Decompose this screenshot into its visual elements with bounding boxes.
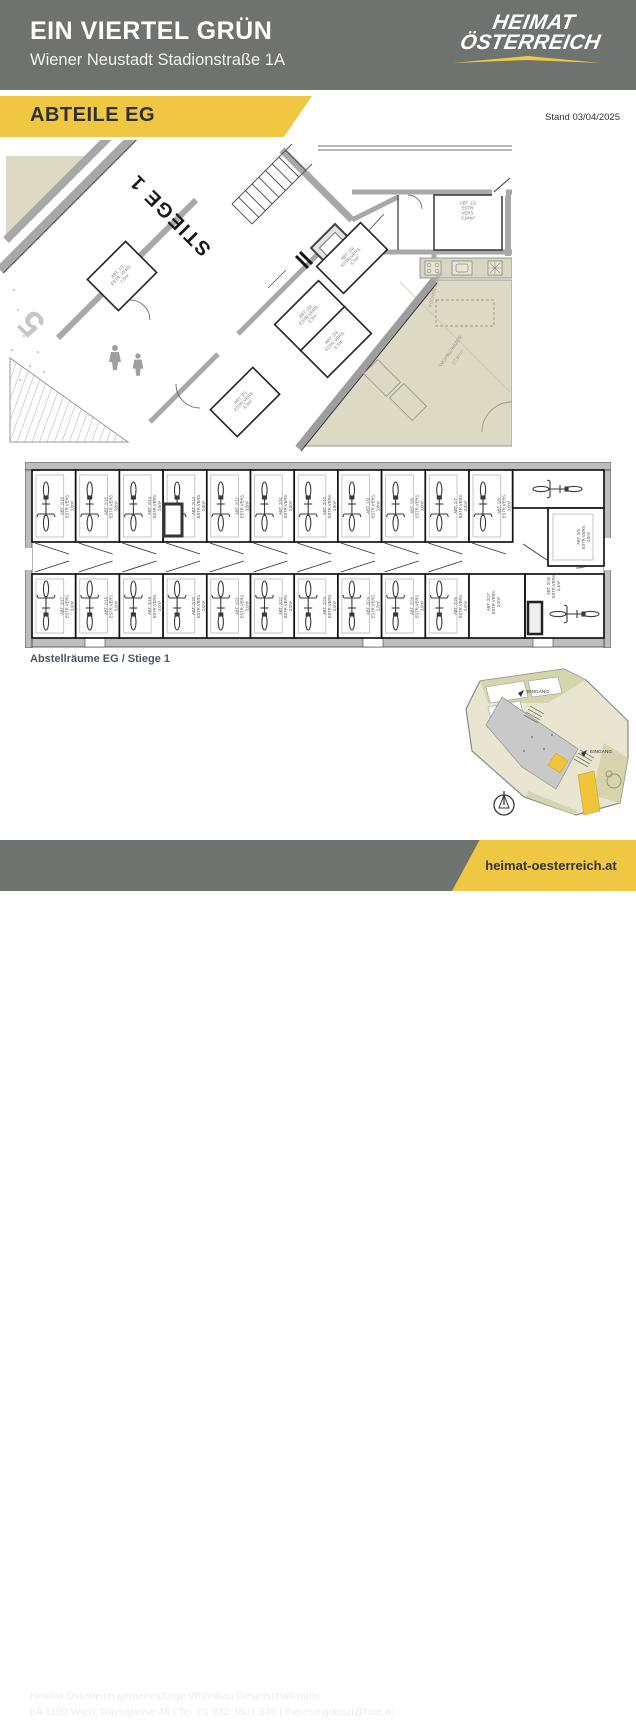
header-bar: EIN VIERTEL GRÜN Wiener Neustadt Stadion… [0,0,636,90]
framed-doorway [164,504,182,536]
logo-line1: HEIMAT [447,13,621,33]
door-leaf [254,561,288,572]
entrance-label-top: EINGANG [527,689,549,695]
door-leaf [35,561,69,572]
door-leaf [297,561,331,572]
bottom-wall [32,638,604,647]
door-leaf [428,543,462,554]
section-label: ABTEILE EG [30,104,155,127]
door-leaf [79,543,113,554]
logo-swoosh-icon [451,54,605,64]
door-leaf [341,561,375,572]
door-leaf [166,543,200,554]
door-leaf [210,543,244,554]
right-door-opening [604,538,611,570]
project-title: EIN VIERTEL GRÜN [30,17,272,46]
bicycle-icon [550,605,599,623]
door-leaf [35,543,69,554]
main-floor-plan: 5 STIEGE 1 [0,140,512,452]
plan-frame-lines [318,146,512,150]
staircase [232,144,312,224]
door-leaf [385,561,419,572]
strip-caption: Abstellräume EG / Stiege 1 [30,653,170,665]
footer-company: Heimat Österreich gemeinnützige Wohnbau … [30,1688,394,1704]
compartment-row-bottom: ABT. 2/17ESTR.VERS.3,0m²ABT. 2/18ESTR.VE… [32,561,604,638]
stiege-label: STIEGE 1 [125,169,216,260]
overview-site-map: EINGANG EINGANG [428,663,632,825]
garage-number: 5 [10,302,53,345]
left-door-opening [25,548,32,570]
door-leaf [297,543,331,554]
ramp-hatch [10,358,128,442]
pedestrian-icons [109,345,143,376]
project-subtitle: Wiener Neustadt Stadionstraße 1A [30,51,285,70]
top-wall [25,462,611,470]
door-leaf [472,543,506,554]
footer-address: pA 1100 Wien, Davidgasse 48 | Tel. 01 98… [30,1704,394,1720]
door-leaf [79,561,113,572]
compartment-row-top: ABT. 2/16ESTR.VERS.3,8m²ABT. 2/15ESTR.VE… [32,470,604,566]
door-leaf [166,561,200,572]
room-label: ABT. 1/2ESTR.VERS.3,04m² [460,201,477,221]
kitchen-strip [420,258,512,278]
logo-line2: ÖSTERREICH [443,33,617,53]
footer-website: heimat-oesterreich.at [471,858,617,873]
door-leaf [210,561,244,572]
door-leaf [122,561,156,572]
entrance-label-right: EINGANG [590,749,612,755]
footer-website-band: heimat-oesterreich.at [452,840,636,891]
door-leaf [385,543,419,554]
compartment-label: ABT. 2/28ESTR.VERS.3,3m² [546,574,561,598]
door-frame [528,602,542,634]
storage-strip-plan: ABT. 2/16ESTR.VERS.3,8m²ABT. 2/15ESTR.VE… [25,462,611,648]
heimat-oesterreich-logo: HEIMAT ÖSTERREICH [442,13,621,64]
footer-contact: Heimat Österreich gemeinnützige Wohnbau … [30,1688,394,1721]
north-arrow-icon [494,791,514,815]
door-leaf [341,543,375,554]
door-leaf [254,543,288,554]
plan-date: Stand 03/04/2025 [545,112,620,123]
door-leaf [523,544,547,560]
door-leaf [428,561,462,572]
door-leaf [122,543,156,554]
